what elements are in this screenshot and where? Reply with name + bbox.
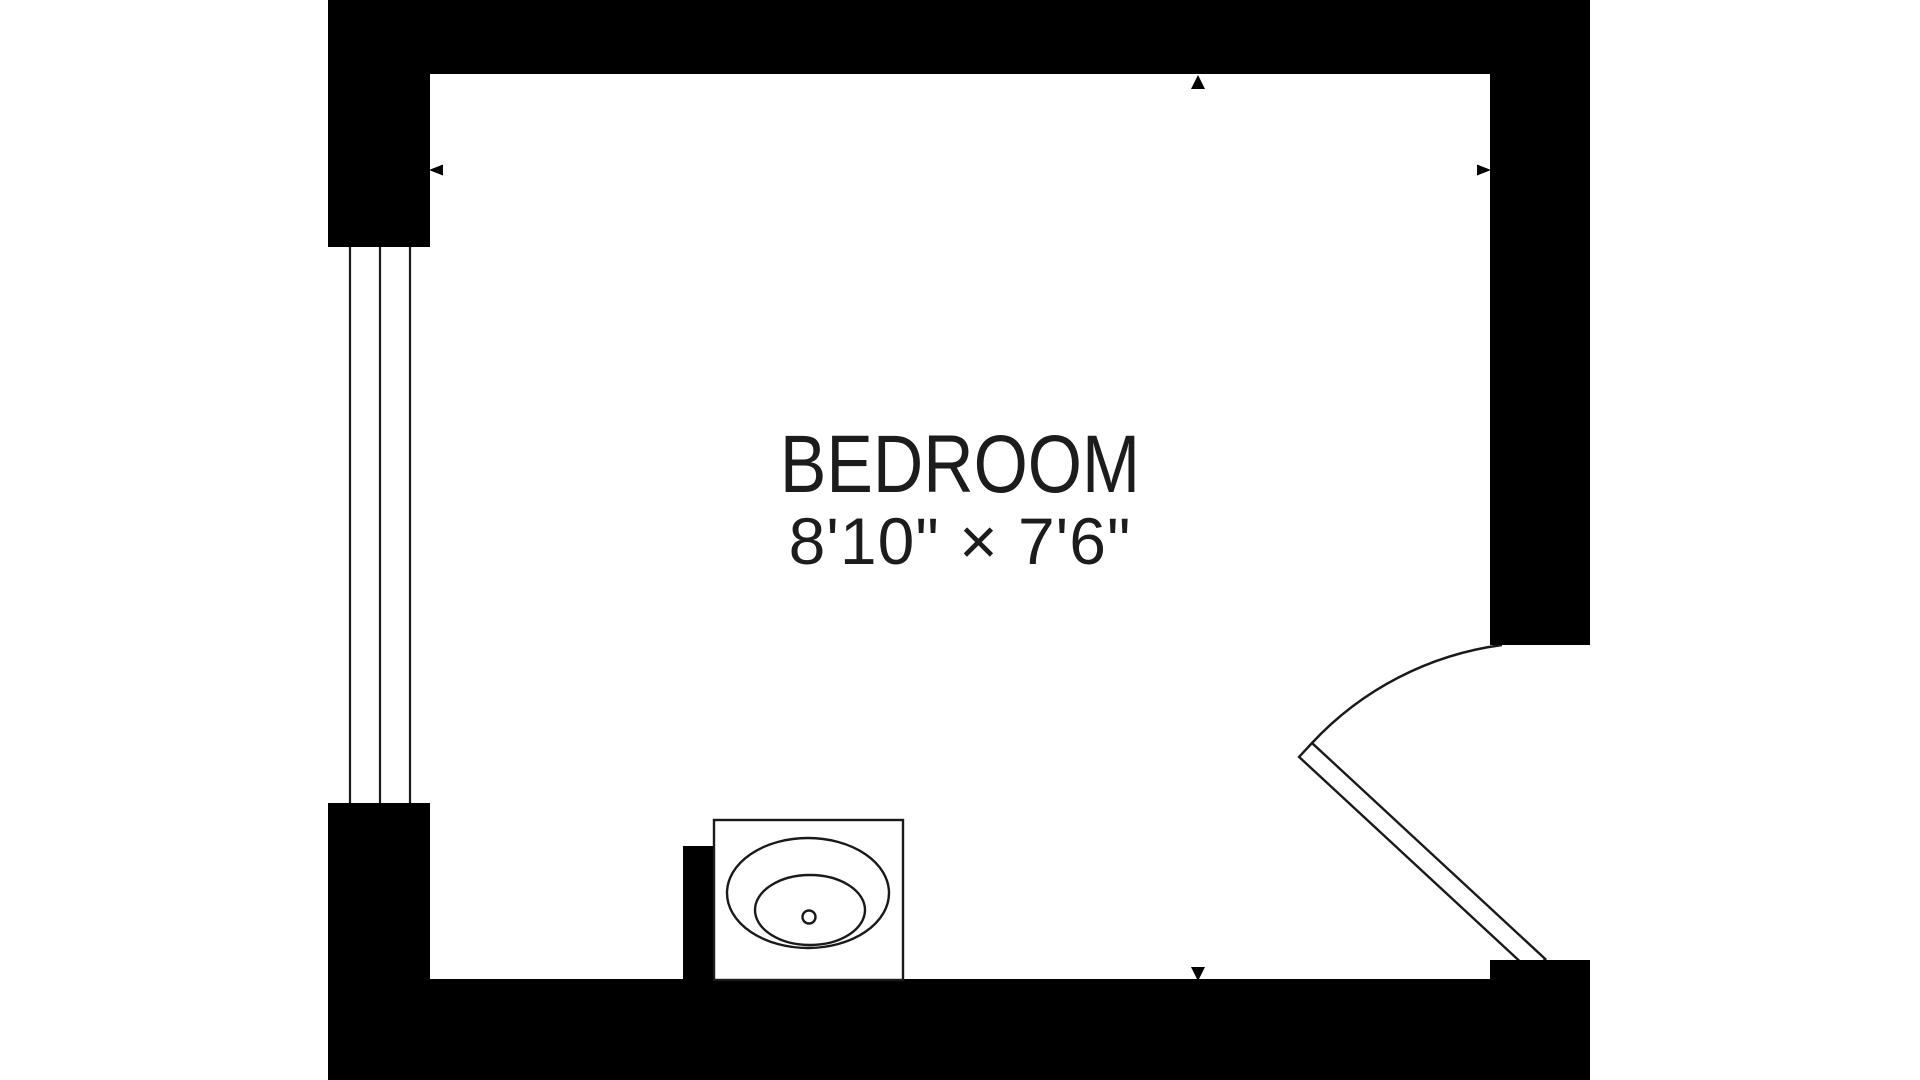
dimension-arrow-up-icon	[1191, 75, 1205, 89]
door	[1299, 645, 1545, 973]
wall-left-lower	[328, 803, 430, 1080]
room-name-label: BEDROOM	[510, 424, 1411, 506]
wall-top	[328, 0, 1590, 74]
sink-vanity	[683, 820, 903, 980]
door-leaf	[1299, 743, 1545, 973]
room-dimensions-label: 8'10" × 7'6"	[430, 508, 1490, 574]
wall-bottom	[430, 979, 1490, 1080]
window	[350, 247, 410, 803]
wall-right	[1490, 0, 1590, 645]
dimension-arrow-right-icon	[1477, 165, 1491, 176]
sink-counter	[714, 820, 903, 980]
dimension-arrow-left-icon	[429, 165, 443, 176]
wall-door-jamb	[1490, 960, 1590, 1080]
wall-left-upper	[328, 0, 430, 247]
sink-wall-stub	[683, 846, 714, 980]
dimension-arrow-down-icon	[1191, 967, 1205, 981]
door-swing-arc	[1312, 645, 1502, 743]
floor-plan-canvas: BEDROOM 8'10" × 7'6"	[0, 0, 1920, 1080]
